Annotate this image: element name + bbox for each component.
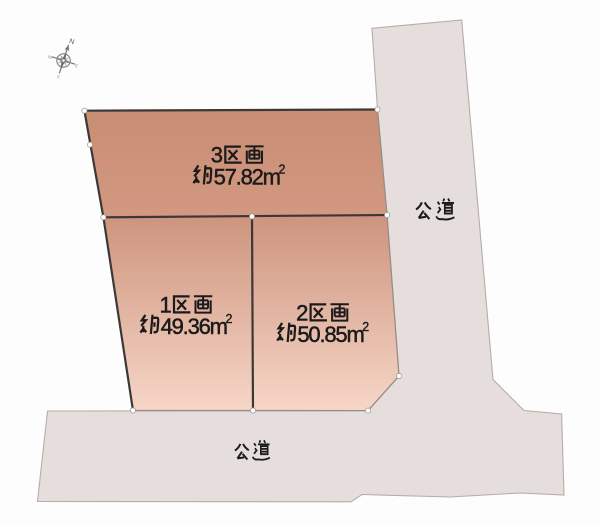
svg-text:57.82m: 57.82m (214, 164, 280, 189)
svg-text:2: 2 (226, 312, 233, 326)
svg-text:2: 2 (362, 320, 369, 334)
svg-text:2: 2 (279, 162, 286, 176)
svg-text:50.85m: 50.85m (297, 322, 363, 347)
svg-text:49.36m: 49.36m (161, 314, 227, 339)
